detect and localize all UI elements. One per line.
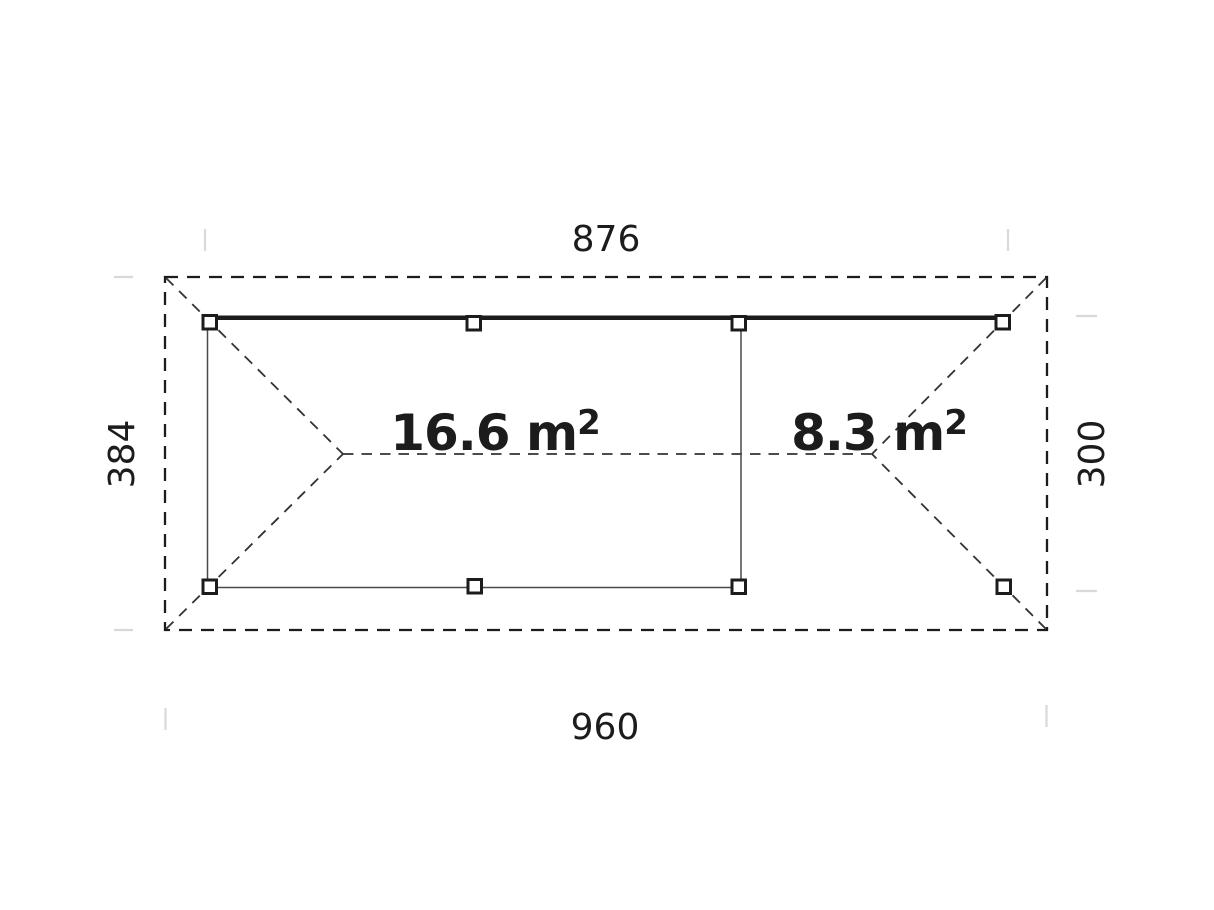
floor-plan-drawing: 876 960 384 300 16.6 m2 8.3 m2	[0, 0, 1214, 910]
dimension-top-width: 876	[572, 219, 641, 260]
area-extension-superscript: 2	[944, 403, 967, 443]
post-marker-top-mid-right	[732, 317, 746, 331]
hip-line-bottom-left	[166, 454, 343, 629]
post-marker-bottom-mid-left	[468, 580, 482, 594]
front-beam	[203, 316, 1010, 321]
area-extension-value: 8.3 m	[791, 404, 944, 462]
post-marker-top-mid-left	[467, 317, 481, 331]
area-label-extension: 8.3 m2	[791, 403, 967, 462]
dimension-bottom-width: 960	[571, 707, 640, 748]
dimension-left-depth: 384	[102, 420, 143, 489]
post-marker-bottom-right	[997, 580, 1011, 594]
floor-plan-canvas: 876 960 384 300 16.6 m2 8.3 m2	[0, 0, 1214, 910]
area-label-main: 16.6 m2	[390, 403, 600, 462]
post-marker-top-left	[203, 316, 217, 330]
area-main-value: 16.6 m	[390, 404, 577, 462]
post-marker-bottom-left	[203, 580, 217, 594]
area-main-superscript: 2	[577, 403, 600, 443]
dimension-right-depth: 300	[1072, 420, 1113, 489]
post-marker-top-right	[996, 316, 1010, 330]
hip-line-top-left	[166, 278, 343, 454]
hip-line-bottom-right	[872, 454, 1046, 629]
post-marker-bottom-mid-right	[732, 580, 746, 594]
